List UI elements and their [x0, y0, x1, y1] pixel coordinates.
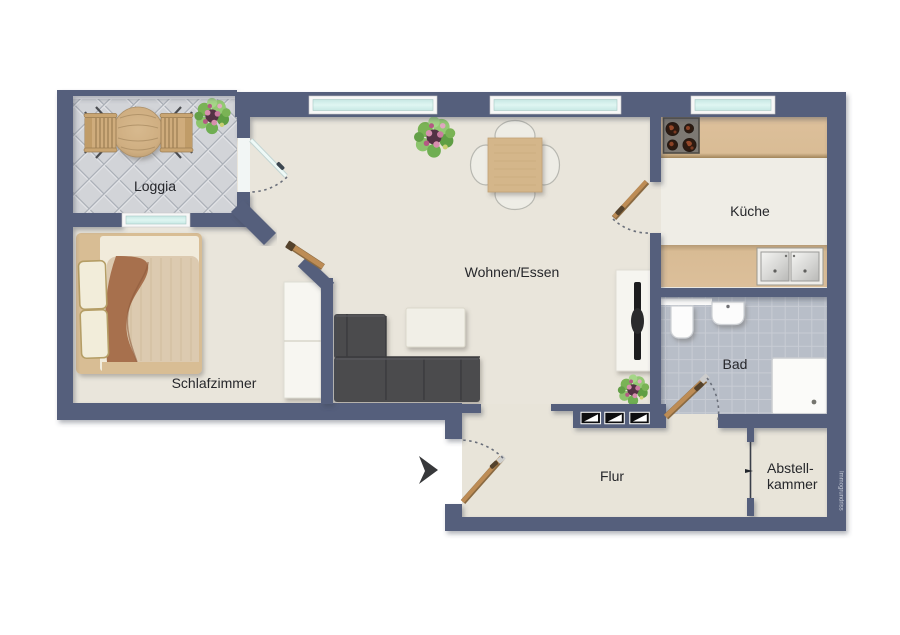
svg-text:Immogrundriss: Immogrundriss: [838, 471, 844, 511]
svg-text:Schlafzimmer: Schlafzimmer: [172, 375, 257, 391]
svg-text:Loggia: Loggia: [134, 178, 176, 194]
svg-text:Wohnen/Essen: Wohnen/Essen: [465, 264, 560, 280]
svg-text:kammer: kammer: [767, 476, 818, 492]
svg-text:Abstell-: Abstell-: [767, 460, 814, 476]
svg-text:Bad: Bad: [723, 356, 748, 372]
svg-text:Flur: Flur: [600, 468, 624, 484]
svg-text:Küche: Küche: [730, 203, 770, 219]
